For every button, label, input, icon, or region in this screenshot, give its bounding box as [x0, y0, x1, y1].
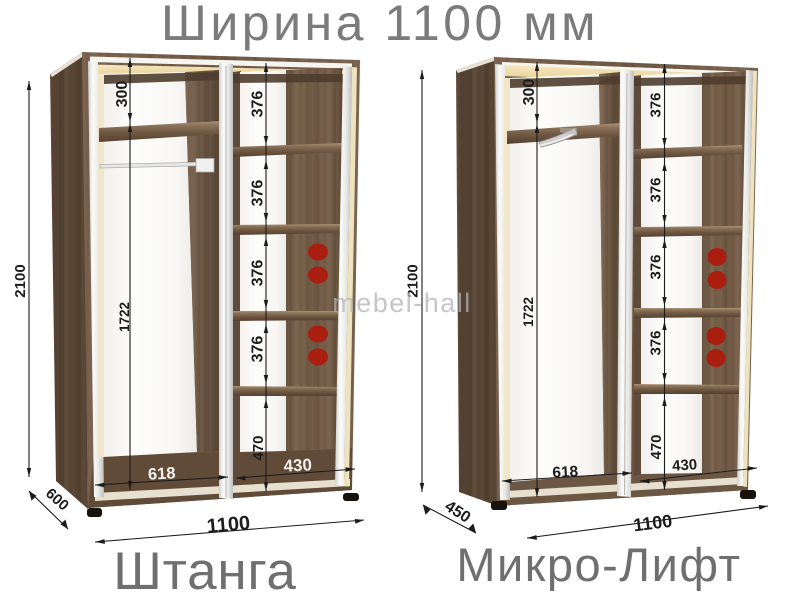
svg-text:430: 430 — [672, 456, 698, 475]
svg-text:376: 376 — [250, 91, 267, 118]
svg-text:mebel-hall: mebel-hall — [332, 288, 472, 318]
svg-text:376: 376 — [648, 177, 665, 202]
svg-text:618: 618 — [148, 464, 176, 483]
svg-text:Микро-Лифт: Микро-Лифт — [456, 538, 741, 591]
svg-text:300: 300 — [114, 81, 131, 108]
svg-text:376: 376 — [648, 330, 665, 355]
svg-text:376: 376 — [648, 254, 665, 279]
svg-text:470: 470 — [250, 435, 267, 460]
svg-text:Ширина 1100 мм: Ширина 1100 мм — [161, 0, 599, 51]
svg-text:1722: 1722 — [117, 302, 132, 332]
svg-text:376: 376 — [250, 180, 267, 207]
svg-text:2100: 2100 — [12, 264, 29, 297]
svg-text:376: 376 — [250, 336, 267, 363]
svg-text:300: 300 — [521, 79, 538, 106]
svg-text:618: 618 — [552, 463, 579, 481]
svg-text:1722: 1722 — [521, 297, 536, 327]
svg-text:376: 376 — [648, 92, 665, 117]
svg-text:1100: 1100 — [206, 512, 251, 538]
svg-text:470: 470 — [648, 434, 665, 459]
svg-text:Штанга: Штанга — [113, 542, 296, 600]
svg-text:430: 430 — [283, 455, 312, 475]
svg-text:376: 376 — [250, 260, 267, 287]
